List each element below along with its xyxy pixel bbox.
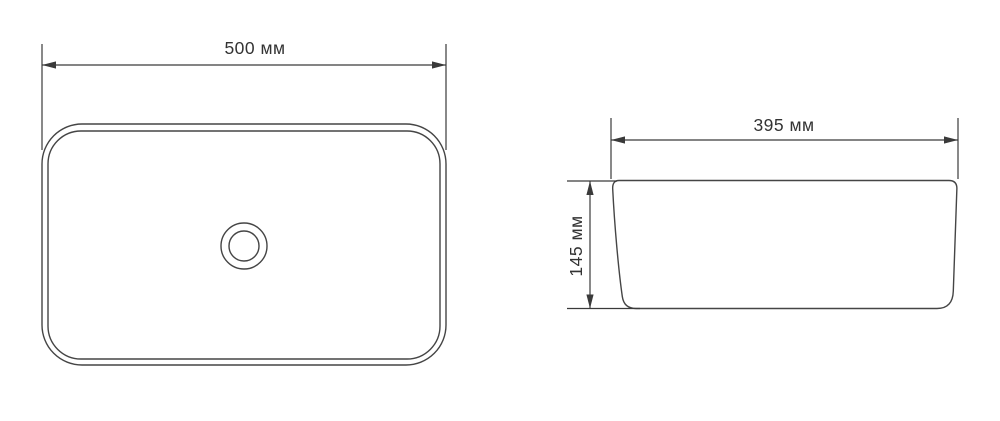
basin-side-outline bbox=[613, 181, 957, 309]
basin-inner-rim bbox=[48, 131, 440, 359]
arrowhead-right-icon bbox=[944, 136, 958, 143]
arrowhead-right-icon bbox=[432, 61, 446, 68]
arrowhead-down-icon bbox=[586, 295, 593, 309]
arrowhead-left-icon bbox=[611, 136, 625, 143]
arrowhead-up-icon bbox=[586, 181, 593, 195]
technical-drawing-canvas: 500 мм 395 мм 145 мм bbox=[0, 0, 1000, 421]
dimension-label-500mm: 500 мм bbox=[224, 38, 285, 58]
dimension-label-145mm: 145 мм bbox=[566, 215, 586, 276]
drain-outer-circle bbox=[221, 223, 267, 269]
top-view-width-dimension bbox=[42, 44, 446, 150]
basin-side-view bbox=[613, 181, 957, 309]
technical-drawing-page: 500 мм 395 мм 145 мм bbox=[0, 0, 1000, 421]
arrowhead-left-icon bbox=[42, 61, 56, 68]
basin-top-view bbox=[42, 124, 446, 365]
dimension-label-395mm: 395 мм bbox=[753, 115, 814, 135]
drain-inner-circle bbox=[229, 231, 259, 261]
basin-outer-rim bbox=[42, 124, 446, 365]
